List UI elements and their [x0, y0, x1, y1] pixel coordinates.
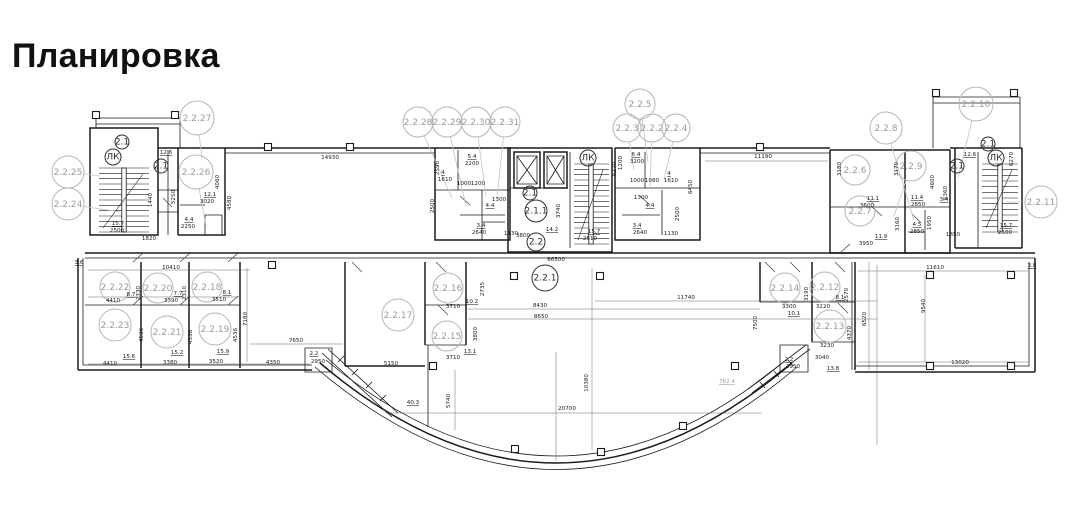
svg-text:2.2.16: 2.2.16	[434, 284, 463, 294]
svg-text:4350: 4350	[266, 360, 281, 366]
svg-text:3.4: 3.4	[633, 223, 642, 229]
svg-text:2590: 2590	[435, 160, 441, 175]
svg-text:5.4: 5.4	[468, 154, 477, 160]
svg-text:2.1: 2.1	[950, 161, 964, 171]
svg-text:3950: 3950	[859, 241, 874, 247]
svg-text:8.1: 8.1	[223, 290, 232, 296]
svg-text:9540: 9540	[921, 298, 927, 313]
svg-text:4410: 4410	[103, 361, 118, 367]
svg-text:15.2: 15.2	[171, 350, 183, 356]
svg-text:3.4: 3.4	[477, 223, 486, 229]
svg-text:1130: 1130	[664, 231, 679, 237]
room-marker: 2.2.4	[662, 114, 690, 142]
floor-plan-section: Планировка	[0, 0, 1082, 510]
svg-text:2.2.2: 2.2.2	[641, 124, 664, 134]
svg-text:2850: 2850	[910, 229, 925, 235]
svg-text:2.2.8: 2.2.8	[875, 124, 898, 134]
svg-text:4370: 4370	[847, 325, 853, 340]
svg-text:2.2.1: 2.2.1	[534, 273, 557, 283]
svg-text:2.2.25: 2.2.25	[54, 168, 83, 178]
svg-text:2850: 2850	[911, 202, 926, 208]
svg-text:11.9: 11.9	[875, 234, 888, 240]
svg-text:762.4: 762.4	[719, 379, 735, 385]
svg-text:1300: 1300	[634, 195, 649, 201]
svg-text:14.2: 14.2	[546, 227, 558, 233]
svg-text:1610: 1610	[438, 177, 453, 183]
svg-text:3800: 3800	[516, 233, 531, 239]
svg-text:2.2.24: 2.2.24	[54, 200, 83, 210]
svg-text:3.8: 3.8	[1028, 263, 1037, 269]
svg-text:3040: 3040	[815, 355, 830, 361]
svg-text:2.2.11: 2.2.11	[1027, 198, 1056, 208]
svg-text:2250: 2250	[181, 224, 196, 230]
room-marker: 2.2.11	[1025, 186, 1057, 218]
svg-text:6.4: 6.4	[632, 152, 641, 158]
core-marker: ЛК	[580, 150, 596, 166]
svg-text:2.2.28: 2.2.28	[404, 118, 433, 128]
svg-text:2310: 2310	[182, 285, 188, 300]
core-marker: 2.2.1	[532, 265, 558, 291]
svg-text:2.2.10: 2.2.10	[962, 100, 991, 110]
svg-text:10380: 10380	[584, 374, 590, 392]
svg-text:4536: 4536	[233, 327, 239, 342]
svg-text:12.6: 12.6	[160, 150, 173, 156]
svg-text:10410: 10410	[162, 265, 180, 271]
svg-text:4: 4	[441, 170, 445, 176]
svg-text:2.2.26: 2.2.26	[182, 168, 211, 178]
svg-text:8.7: 8.7	[127, 292, 136, 298]
svg-text:2.1.1: 2.1.1	[525, 206, 548, 216]
room-marker: 2.2.29	[432, 107, 462, 137]
svg-text:3600: 3600	[860, 203, 875, 209]
svg-text:4.5: 4.5	[913, 222, 922, 228]
room-marker: 2.2.14	[770, 273, 800, 303]
core-marker: 2.1.1	[525, 200, 548, 222]
svg-text:2.1: 2.1	[523, 188, 537, 198]
svg-text:8430: 8430	[533, 303, 548, 309]
core-marker: 2.1	[950, 159, 964, 173]
svg-text:3800: 3800	[473, 326, 479, 341]
svg-text:20700: 20700	[558, 406, 576, 412]
svg-text:1440: 1440	[148, 192, 154, 207]
svg-text:11.1: 11.1	[867, 196, 880, 202]
svg-text:2640: 2640	[472, 230, 487, 236]
svg-text:1200: 1200	[471, 181, 486, 187]
room-marker: 2.2.28	[403, 107, 433, 137]
room-marker: 2.2.10	[959, 87, 993, 121]
room-marker: 2.2.15	[432, 321, 462, 351]
svg-text:11610: 11610	[926, 265, 944, 271]
svg-text:2510: 2510	[583, 236, 598, 242]
svg-text:5740: 5740	[446, 393, 452, 408]
svg-text:7500: 7500	[753, 315, 759, 330]
svg-text:1950: 1950	[927, 215, 933, 230]
svg-text:2.1: 2.1	[115, 137, 129, 147]
svg-text:2.2: 2.2	[310, 351, 319, 357]
svg-text:15.7: 15.7	[1000, 223, 1013, 229]
svg-text:7650: 7650	[289, 338, 304, 344]
svg-text:2.2.19: 2.2.19	[201, 325, 230, 335]
svg-text:4536: 4536	[139, 327, 145, 342]
svg-text:2.2.18: 2.2.18	[193, 283, 222, 293]
svg-text:2.2.13: 2.2.13	[816, 322, 845, 332]
svg-text:1300: 1300	[492, 197, 507, 203]
svg-text:2.2.9: 2.2.9	[900, 162, 923, 172]
svg-text:14930: 14930	[321, 155, 339, 161]
svg-text:ЛК: ЛК	[581, 153, 595, 163]
svg-text:1610: 1610	[664, 178, 679, 184]
svg-text:4.4: 4.4	[646, 203, 655, 209]
room-marker: 2.2.23	[99, 309, 131, 341]
svg-text:ЛК: ЛК	[989, 153, 1003, 163]
svg-text:3740: 3740	[556, 203, 562, 218]
room-marker: 2.2.6	[840, 155, 870, 185]
svg-text:4600: 4600	[930, 174, 936, 189]
room-marker: 2.2.31	[490, 107, 520, 137]
svg-text:4060: 4060	[215, 174, 221, 189]
svg-text:3170: 3170	[894, 161, 900, 176]
svg-text:4.4: 4.4	[486, 203, 495, 209]
svg-text:3.4: 3.4	[940, 197, 949, 203]
svg-text:2.2.4: 2.2.4	[665, 124, 688, 134]
svg-text:3180: 3180	[837, 161, 843, 176]
svg-text:2.2.17: 2.2.17	[384, 311, 413, 321]
svg-text:2.2.14: 2.2.14	[771, 284, 800, 294]
core-marker: 2.1	[154, 159, 168, 173]
core-marker: 2.1	[115, 135, 129, 149]
svg-text:2.2.6: 2.2.6	[844, 166, 867, 176]
svg-text:10.1: 10.1	[788, 311, 801, 317]
svg-text:2.2.5: 2.2.5	[629, 100, 652, 110]
svg-text:2.1: 2.1	[981, 139, 995, 149]
room-markers: 2.2.252.2.242.2.272.2.262.2.282.2.292.2.…	[52, 87, 1057, 351]
svg-text:11.4: 11.4	[911, 195, 924, 201]
svg-text:2570: 2570	[844, 287, 850, 302]
svg-text:4536: 4536	[188, 329, 194, 344]
svg-text:2500: 2500	[998, 230, 1013, 236]
svg-text:2.2.27: 2.2.27	[183, 114, 212, 124]
svg-text:2.2.22: 2.2.22	[101, 283, 130, 293]
svg-text:15.7: 15.7	[112, 221, 125, 227]
svg-text:6520: 6520	[862, 311, 868, 326]
svg-text:3390: 3390	[164, 298, 179, 304]
svg-text:3190: 3190	[804, 286, 810, 301]
svg-text:2500: 2500	[430, 198, 436, 213]
svg-text:11190: 11190	[754, 154, 772, 160]
svg-text:1000: 1000	[457, 181, 472, 187]
svg-text:2.2.29: 2.2.29	[433, 118, 462, 128]
core-marker: ЛК	[988, 150, 1004, 166]
svg-text:6450: 6450	[688, 179, 694, 194]
svg-text:2.2.23: 2.2.23	[101, 321, 130, 331]
svg-text:1820: 1820	[142, 236, 157, 242]
svg-text:2.2: 2.2	[785, 357, 794, 363]
svg-text:5250: 5250	[171, 189, 177, 204]
svg-text:4: 4	[667, 171, 671, 177]
svg-text:13.8: 13.8	[827, 366, 840, 372]
svg-text:12.6: 12.6	[964, 152, 977, 158]
svg-text:3520: 3520	[209, 359, 224, 365]
svg-text:10.2: 10.2	[466, 299, 478, 305]
room-marker: 2.2.16	[433, 273, 463, 303]
svg-text:66500: 66500	[547, 257, 565, 263]
svg-text:13020: 13020	[951, 360, 969, 366]
room-marker: 2.2.8	[870, 112, 902, 144]
svg-text:3020: 3020	[200, 199, 215, 205]
svg-text:3710: 3710	[446, 304, 461, 310]
svg-text:2.2.15: 2.2.15	[433, 332, 462, 342]
svg-text:3510: 3510	[212, 297, 227, 303]
svg-text:15.9: 15.9	[217, 349, 230, 355]
svg-text:11740: 11740	[677, 295, 695, 301]
svg-text:2.2.31: 2.2.31	[491, 118, 520, 128]
svg-text:40.3: 40.3	[407, 400, 420, 406]
svg-text:3300: 3300	[782, 304, 797, 310]
svg-text:15.6: 15.6	[123, 354, 136, 360]
svg-text:13.1: 13.1	[464, 349, 477, 355]
svg-text:2.2.21: 2.2.21	[153, 328, 182, 338]
room-marker: 2.2.25	[52, 156, 84, 188]
svg-text:6270: 6270	[1009, 151, 1015, 166]
svg-text:3160: 3160	[895, 216, 901, 231]
room-marker: 2.2.24	[52, 188, 84, 220]
svg-text:2950: 2950	[786, 364, 801, 370]
floor-plan-drawing: 2.2.252.2.242.2.272.2.262.2.282.2.292.2.…	[0, 0, 1082, 510]
page-title: Планировка	[12, 37, 220, 76]
room-marker: 2.2.3	[613, 114, 641, 142]
svg-text:5150: 5150	[384, 361, 399, 367]
svg-text:2950: 2950	[311, 359, 326, 365]
svg-text:3230: 3230	[820, 343, 835, 349]
svg-text:2640: 2640	[633, 230, 648, 236]
room-marker: 2.2.17	[382, 299, 414, 331]
svg-text:2.2.30: 2.2.30	[462, 118, 491, 128]
svg-text:4.4: 4.4	[185, 217, 194, 223]
room-marker: 2.2.19	[199, 313, 231, 345]
svg-text:2.2: 2.2	[529, 237, 543, 247]
core-marker: 2.1	[981, 137, 995, 151]
room-marker: 2.2.30	[461, 107, 491, 137]
svg-text:1200: 1200	[618, 155, 624, 170]
svg-text:2500: 2500	[675, 206, 681, 221]
room-marker: 2.2.26	[179, 155, 213, 189]
svg-text:12.1: 12.1	[204, 192, 217, 198]
svg-text:2.1: 2.1	[154, 161, 168, 171]
svg-text:1850: 1850	[946, 232, 961, 238]
svg-text:2200: 2200	[465, 161, 480, 167]
room-marker: 2.2.13	[814, 310, 846, 342]
core-marker: ЛК	[105, 149, 121, 165]
svg-text:8650: 8650	[534, 314, 549, 320]
room-marker: 2.2.21	[151, 316, 183, 348]
svg-text:3200: 3200	[630, 159, 645, 165]
svg-text:3710: 3710	[446, 355, 461, 361]
svg-text:ЛК: ЛК	[106, 152, 120, 162]
svg-text:2500: 2500	[110, 228, 125, 234]
svg-text:4580: 4580	[227, 195, 233, 210]
svg-text:3.6: 3.6	[75, 260, 84, 266]
svg-text:2.2.12: 2.2.12	[811, 283, 840, 293]
room-marker: 2.2.27	[180, 101, 214, 135]
elevator-shafts	[514, 152, 567, 188]
svg-text:2.2.20: 2.2.20	[144, 284, 173, 294]
svg-text:1000: 1000	[630, 178, 645, 184]
svg-text:4410: 4410	[106, 298, 121, 304]
svg-text:3220: 3220	[816, 304, 831, 310]
svg-text:15.7: 15.7	[588, 229, 601, 235]
svg-text:1080: 1080	[645, 178, 660, 184]
svg-text:7180: 7180	[243, 311, 249, 326]
svg-text:2.2.3: 2.2.3	[616, 124, 639, 134]
core-marker: 2.1	[523, 186, 537, 200]
svg-text:2330: 2330	[136, 285, 142, 300]
svg-text:2735: 2735	[480, 281, 486, 296]
svg-text:3380: 3380	[163, 360, 178, 366]
room-marker: 2.2.9	[896, 151, 926, 181]
